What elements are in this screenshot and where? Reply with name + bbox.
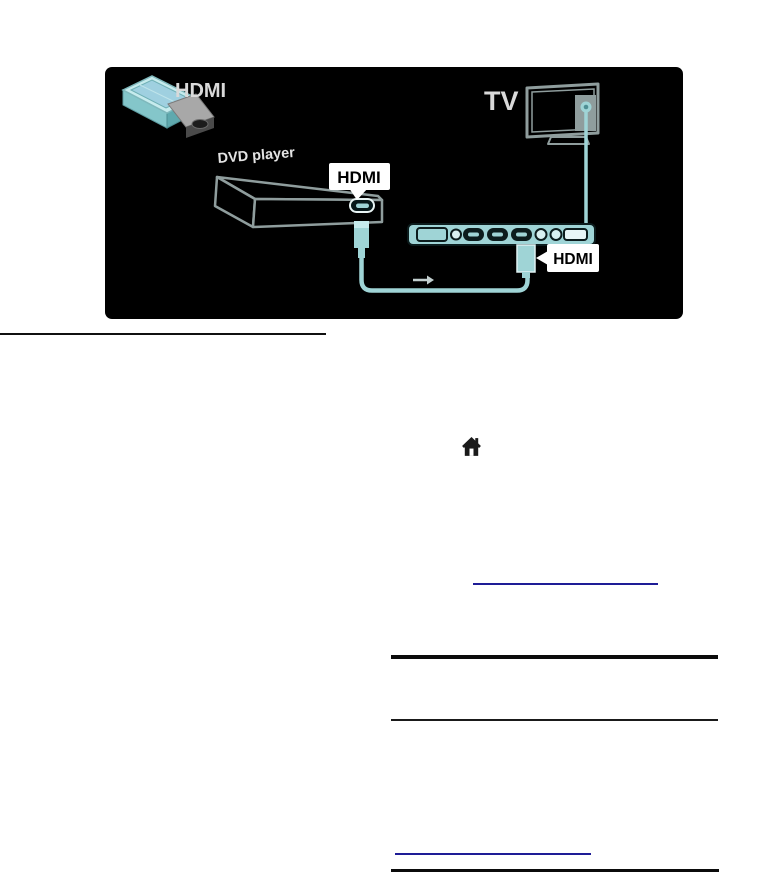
- divider-thick: [391, 655, 718, 659]
- dvd-player-label: DVD player: [217, 145, 296, 167]
- panel-hdmi-port-1: [463, 228, 484, 241]
- panel-round-port-1: [451, 230, 461, 240]
- hyperlink-underline-1[interactable]: [473, 583, 658, 585]
- tv-stand: [548, 137, 589, 144]
- panel-rect-port: [564, 229, 587, 240]
- hyperlink-underline-2[interactable]: [395, 853, 591, 855]
- panel-round-port-3: [551, 229, 562, 240]
- connection-panel-icon: [408, 224, 595, 245]
- hdmi-callout-panel-label: HDMI: [553, 251, 593, 268]
- cable-plug-panel: [517, 245, 535, 272]
- home-icon: [461, 436, 482, 458]
- panel-round-port-2: [536, 229, 547, 240]
- dvd-hdmi-port-slot: [356, 204, 369, 209]
- divider-under-diagram: [0, 333, 326, 335]
- hdmi-connection-diagram: HDMI DVD player HDMI TV: [105, 67, 683, 319]
- tv-icon: [527, 84, 598, 226]
- hdmi-callout-panel: HDMI: [536, 244, 599, 272]
- panel-hdmi-port-3: [511, 228, 532, 241]
- hdmi-callout-dvd-label: HDMI: [337, 168, 380, 187]
- arrow-right-icon: [413, 276, 434, 285]
- tv-label: TV: [484, 86, 519, 116]
- hdmi-icon-label: HDMI: [175, 80, 226, 102]
- diagram-canvas: HDMI DVD player HDMI TV: [105, 67, 683, 319]
- panel-hdmi-port-2: [487, 228, 508, 241]
- divider-bottom: [391, 869, 719, 872]
- divider-thin: [391, 719, 718, 721]
- manual-page: HDMI DVD player HDMI TV: [0, 0, 778, 875]
